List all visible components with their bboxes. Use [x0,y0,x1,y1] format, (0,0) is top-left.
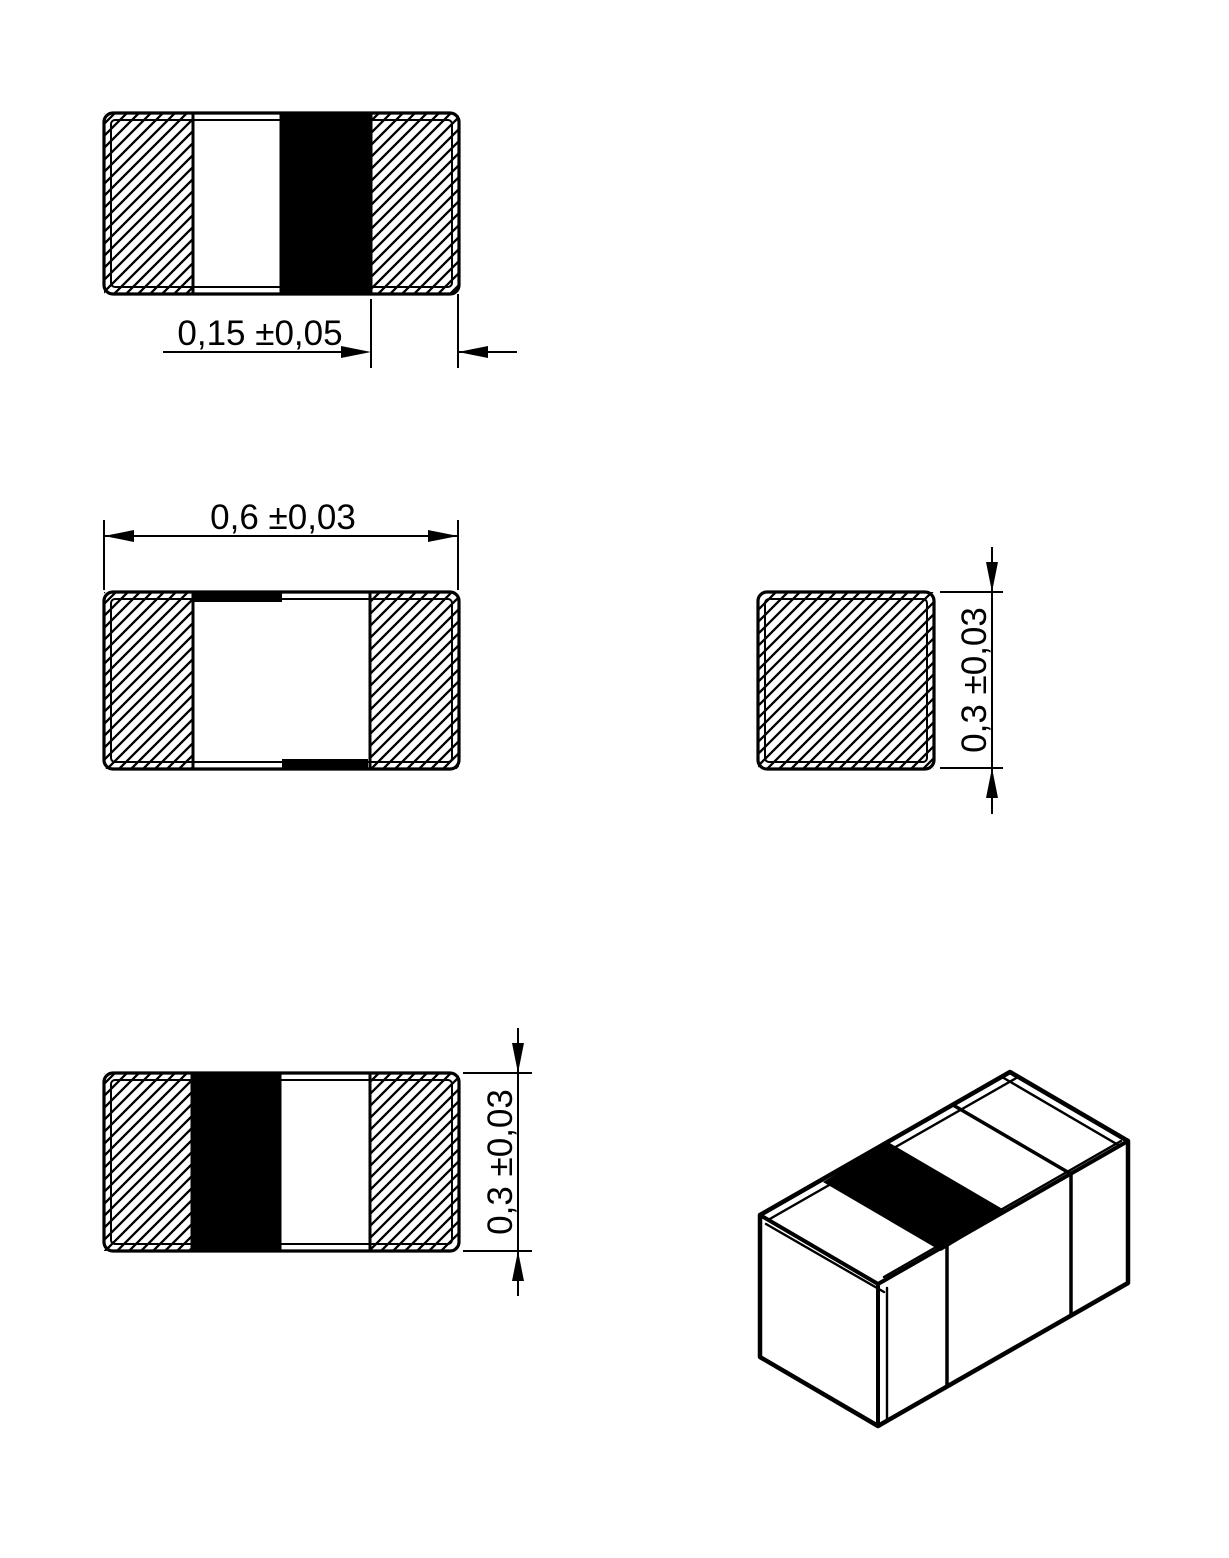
dimension-label: 0,15 ±0,05 [177,314,342,353]
dimension-label: 0,3 ±0,03 [955,607,994,753]
termination-hatch-right [370,1073,459,1251]
arrowhead-up [512,1251,524,1281]
dimension-length: 0,6 ±0,03 [104,498,458,590]
arrowhead-up [986,768,998,798]
arrowhead-down [986,562,998,592]
termination-hatch-left [104,113,193,294]
drawing-canvas: 0,15 ±0,05 0,6 ±0,03 0,3 ±0,03 [0,0,1229,1558]
termination-hatch-left [104,592,193,769]
arrowhead-down [512,1043,524,1073]
end-view: 0,3 ±0,03 [758,547,1003,814]
termination-boundary-lines [947,1105,1071,1386]
isometric-view [760,1072,1128,1426]
marking-band [192,1073,280,1251]
marking-band [281,113,371,294]
marking-band [823,1142,1006,1251]
termination-boundary-lines [193,592,370,769]
termination-hatch [758,592,934,769]
arrowhead-left [104,530,134,542]
dimension-height-front: 0,3 ±0,03 [463,1028,532,1296]
arrowhead-right [341,346,371,358]
dimension-marking-offset: 0,15 ±0,05 [163,294,517,368]
arrowhead-left [458,346,488,358]
termination-hatch-right [370,592,459,769]
arrowhead-right [428,530,458,542]
dimension-height-end: 0,3 ±0,03 [940,547,1003,814]
termination-hatch-right [371,113,459,294]
extension-lines [371,294,458,368]
termination-hatch-left [104,1073,192,1251]
top-view: 0,15 ±0,05 [104,113,517,368]
technical-drawing: 0,15 ±0,05 0,6 ±0,03 0,3 ±0,03 [0,0,1229,1558]
dimension-label: 0,6 ±0,03 [210,498,356,537]
dimension-label: 0,3 ±0,03 [481,1089,520,1235]
bottom-view: 0,3 ±0,03 [104,1028,532,1296]
front-view: 0,6 ±0,03 [104,498,459,769]
